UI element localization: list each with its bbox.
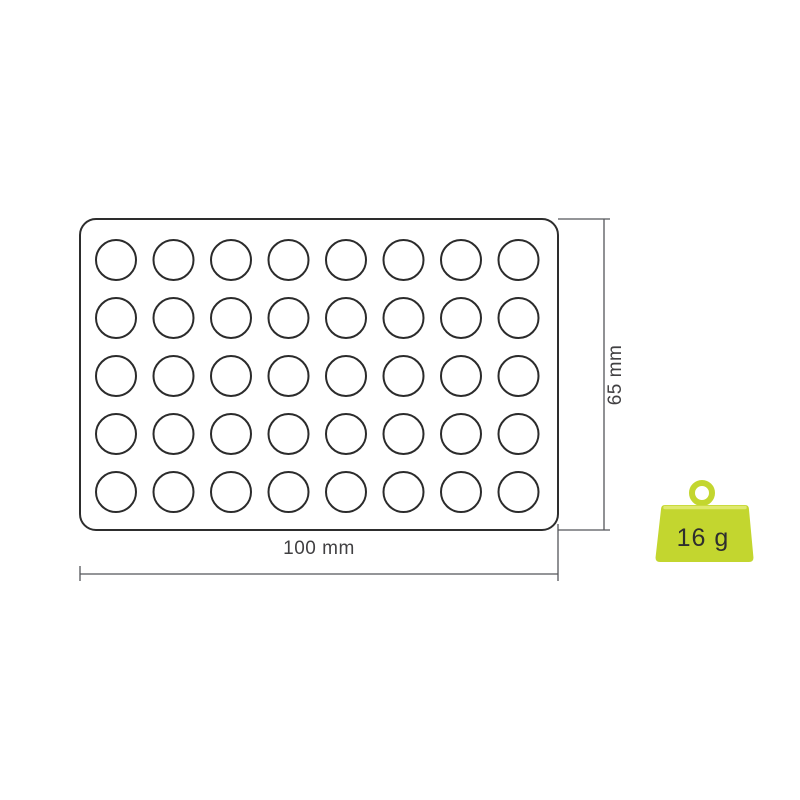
cavity-circle (441, 414, 481, 454)
cavity-circle (441, 298, 481, 338)
cavity-circle (499, 472, 539, 512)
cavity-circle (154, 240, 194, 280)
cavity-circle (326, 414, 366, 454)
product-dimension-diagram: 65 mm 100 mm 16 g (0, 0, 800, 800)
weight-ring-icon (692, 483, 712, 503)
cavity-circle (211, 472, 251, 512)
cavity-circle (499, 414, 539, 454)
cavity-circle (96, 240, 136, 280)
cavity-circle (326, 240, 366, 280)
cavity-circle (211, 298, 251, 338)
tray-outline (80, 219, 558, 530)
page-background: 65 mm 100 mm 16 g (0, 0, 800, 800)
width-dimension-label: 100 mm (283, 538, 355, 559)
cavity-circle (384, 414, 424, 454)
cavity-circle (154, 298, 194, 338)
cavity-circle (269, 240, 309, 280)
cavity-circle (269, 356, 309, 396)
cavity-circle (499, 356, 539, 396)
cavity-circle (269, 414, 309, 454)
cavity-circle (269, 298, 309, 338)
cavity-circle (499, 240, 539, 280)
cavity-circle (441, 472, 481, 512)
cavity-circle (326, 298, 366, 338)
cavity-circle (384, 356, 424, 396)
cavity-circle (96, 298, 136, 338)
cavity-circle (384, 240, 424, 280)
cavity-circle (154, 356, 194, 396)
cavity-circle (154, 414, 194, 454)
cavity-circle (326, 356, 366, 396)
cavity-circle (96, 356, 136, 396)
weight-badge: 16 g (656, 483, 754, 562)
cavity-circle (384, 472, 424, 512)
mold-diagram (80, 219, 558, 530)
cavity-circle (269, 472, 309, 512)
weight-label: 16 g (677, 524, 730, 552)
cavity-circle (441, 356, 481, 396)
cavity-circle (499, 298, 539, 338)
cavity-circle (326, 472, 366, 512)
cavity-circle (211, 414, 251, 454)
cavity-circle (211, 240, 251, 280)
cavity-circle (441, 240, 481, 280)
cavity-circle (154, 472, 194, 512)
cavity-circle (96, 472, 136, 512)
cavity-circle (211, 356, 251, 396)
cavity-circle (384, 298, 424, 338)
cavity-circle (96, 414, 136, 454)
height-dimension-label: 65 mm (605, 345, 626, 406)
